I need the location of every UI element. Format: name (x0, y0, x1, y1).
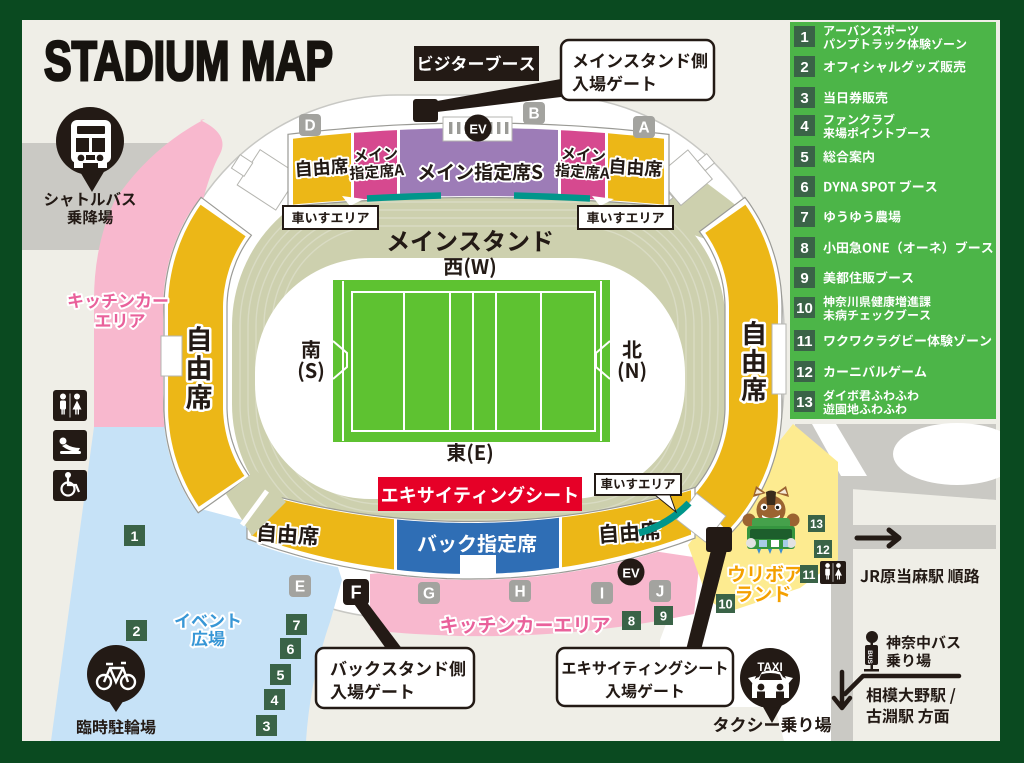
svg-text:B: B (528, 106, 539, 123)
svg-text:EV: EV (469, 122, 487, 137)
svg-text:BUS: BUS (866, 650, 873, 664)
svg-text:I: I (600, 586, 604, 603)
svg-text:3: 3 (263, 719, 271, 735)
svg-text:9: 9 (660, 609, 667, 624)
svg-text:F: F (350, 583, 361, 603)
svg-text:D: D (304, 118, 315, 135)
svg-text:5: 5 (800, 149, 808, 166)
svg-text:E: E (295, 579, 305, 596)
svg-text:H: H (514, 584, 525, 601)
svg-text:J: J (656, 584, 665, 601)
svg-text:2: 2 (133, 624, 141, 640)
svg-text:11: 11 (803, 568, 816, 582)
svg-text:A: A (638, 120, 649, 137)
svg-text:6: 6 (287, 642, 295, 658)
svg-text:7: 7 (800, 209, 808, 226)
svg-text:13: 13 (796, 394, 813, 411)
svg-text:G: G (423, 586, 435, 603)
svg-text:6: 6 (800, 179, 808, 196)
svg-text:EV: EV (622, 566, 640, 581)
svg-text:12: 12 (796, 364, 813, 381)
svg-text:1: 1 (800, 29, 808, 46)
svg-text:8: 8 (800, 240, 808, 257)
svg-text:8: 8 (628, 614, 635, 629)
svg-text:13: 13 (810, 519, 823, 531)
svg-text:2: 2 (800, 59, 808, 76)
svg-text:3: 3 (800, 90, 808, 107)
svg-text:STADIUM MAP: STADIUM MAP (44, 29, 333, 92)
svg-text:10: 10 (718, 597, 732, 612)
svg-text:10: 10 (796, 300, 813, 317)
svg-text:5: 5 (277, 668, 285, 684)
svg-text:9: 9 (800, 270, 808, 287)
svg-text:11: 11 (797, 333, 813, 350)
svg-text:7: 7 (293, 618, 301, 634)
svg-text:1: 1 (131, 529, 139, 545)
svg-text:12: 12 (816, 543, 830, 557)
svg-text:4: 4 (800, 118, 809, 135)
svg-text:4: 4 (271, 693, 279, 709)
